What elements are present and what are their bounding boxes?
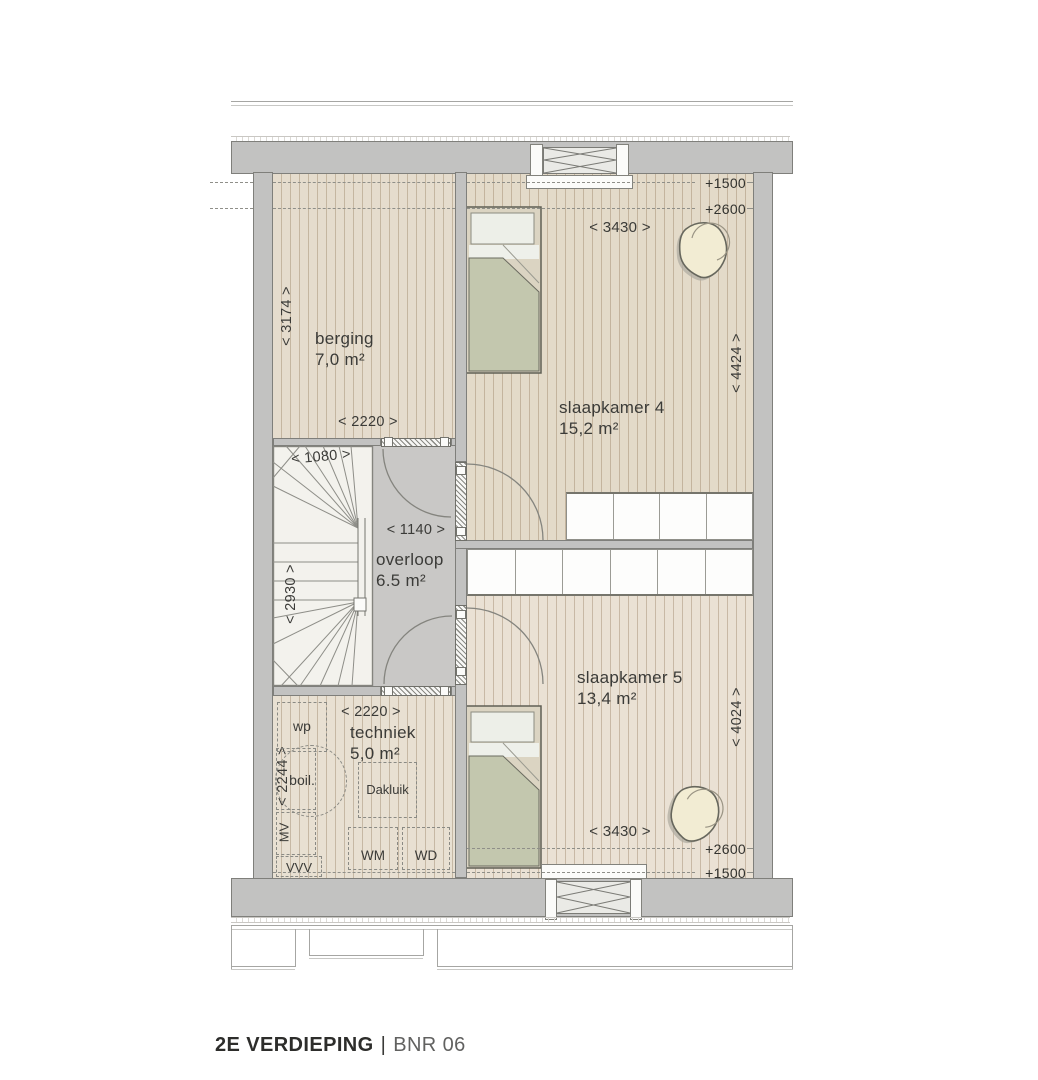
dim-2930: < 2930 > bbox=[283, 554, 299, 634]
stair-handrail bbox=[354, 518, 366, 616]
wall-berging-stairs-b bbox=[451, 438, 456, 446]
wall-top bbox=[231, 141, 793, 174]
wall-left bbox=[253, 172, 273, 917]
room-name: slaapkamer 4 bbox=[559, 397, 665, 418]
height-line-top-2600 bbox=[273, 208, 455, 209]
level-label-top-1500: +1500 bbox=[696, 175, 746, 191]
wardrobe-cell bbox=[611, 550, 659, 594]
window-top-post-right bbox=[616, 144, 629, 176]
dim-3430-slaapkamer5: < 3430 > bbox=[580, 823, 660, 840]
wall-corridor-middle bbox=[455, 541, 467, 606]
dim-3174: < 3174 > bbox=[279, 276, 295, 356]
room-area: 15,2 m² bbox=[559, 418, 665, 439]
door-jamb bbox=[456, 466, 466, 475]
height-line-top-2600 bbox=[747, 208, 753, 209]
height-line-top-1500 bbox=[210, 182, 253, 183]
room-area: 13,4 m² bbox=[577, 688, 683, 709]
wardrobe-cell bbox=[658, 550, 706, 594]
room-name: overloop bbox=[376, 549, 444, 570]
room-area: 6.5 m² bbox=[376, 570, 444, 591]
window-top-glass bbox=[543, 147, 617, 174]
height-line-bottom-1500 bbox=[467, 872, 695, 873]
door-jamb bbox=[440, 437, 449, 447]
lower-outline-notch2 bbox=[309, 958, 423, 959]
wall-right bbox=[753, 172, 773, 917]
height-line-bottom-2600 bbox=[467, 848, 695, 849]
room-label-berging: berging 7,0 m² bbox=[315, 328, 374, 370]
door-jamb bbox=[456, 610, 466, 619]
wardrobe-cell bbox=[614, 494, 661, 539]
lower-outline-vert bbox=[437, 929, 438, 967]
wall-berging-stairs-a bbox=[273, 438, 381, 446]
lower-outline-bottom-left bbox=[231, 966, 295, 967]
roof-edge-top-outer bbox=[231, 101, 793, 102]
lower-outline-vert bbox=[231, 925, 232, 969]
room-label-slaapkamer5: slaapkamer 5 13,4 m² bbox=[577, 667, 683, 709]
fixture-label-wp: wp bbox=[277, 718, 327, 734]
room-area: 7,0 m² bbox=[315, 349, 374, 370]
door-jamb bbox=[456, 527, 466, 536]
lower-outline-top2 bbox=[231, 929, 793, 930]
wall-corridor-upper bbox=[455, 172, 467, 462]
wall-stairs-techniek-b bbox=[451, 686, 456, 696]
wardrobe-cell bbox=[516, 550, 564, 594]
dim-2220-techniek: < 2220 > bbox=[331, 704, 411, 720]
roof-hatch-bottom bbox=[231, 917, 790, 923]
floor-plan-page: +1500 +2600 +2600 +1500 < 3174 > < 2220 … bbox=[0, 0, 1038, 1080]
fixture-label-wm: WM bbox=[348, 848, 398, 863]
wardrobe-cell bbox=[563, 550, 611, 594]
dim-4024: < 4024 > bbox=[729, 677, 745, 757]
level-label-top-2600: +2600 bbox=[696, 201, 746, 217]
dim-4424: < 4424 > bbox=[729, 323, 745, 403]
plan-title: 2E VERDIEPING|BNR 06 bbox=[215, 1034, 466, 1057]
floor-berging bbox=[273, 173, 455, 438]
window-bottom-post-right bbox=[630, 879, 642, 920]
room-label-overloop: overloop 6.5 m² bbox=[376, 549, 444, 591]
door-jamb bbox=[384, 437, 393, 447]
plan-title-separator: | bbox=[374, 1034, 394, 1056]
height-line-top-1500 bbox=[467, 182, 695, 183]
lower-outline-notch bbox=[309, 955, 423, 956]
room-area: 5,0 m² bbox=[350, 743, 416, 764]
plan-title-floor: 2E VERDIEPING bbox=[215, 1034, 374, 1056]
door-jamb bbox=[440, 686, 449, 696]
wardrobe-cell bbox=[468, 550, 516, 594]
lower-outline-bottom-right2 bbox=[437, 969, 793, 970]
plan-title-number: BNR 06 bbox=[393, 1034, 465, 1056]
lower-outline-vert bbox=[792, 925, 793, 969]
height-line-top-2600 bbox=[210, 208, 253, 209]
lower-outline-vert bbox=[309, 929, 310, 956]
room-name: berging bbox=[315, 328, 374, 349]
height-line-top-1500 bbox=[273, 182, 455, 183]
lower-outline-vert bbox=[295, 929, 296, 967]
wall-bedroom-divider bbox=[455, 540, 753, 549]
wardrobe-slaapkamer5 bbox=[467, 549, 753, 596]
dim-3430-slaapkamer4: < 3430 > bbox=[580, 219, 660, 236]
wardrobe-cell bbox=[567, 494, 614, 539]
wardrobe-cell bbox=[660, 494, 707, 539]
level-label-bottom-1500: +1500 bbox=[696, 865, 746, 881]
wall-corridor-lower bbox=[455, 684, 467, 878]
wardrobe-slaapkamer4 bbox=[566, 492, 753, 540]
room-name: slaapkamer 5 bbox=[577, 667, 683, 688]
room-name: techniek bbox=[350, 722, 416, 743]
dim-2220-berging: < 2220 > bbox=[328, 414, 408, 430]
fixture-label-dakluik: Dakluik bbox=[358, 782, 417, 797]
window-top-post-left bbox=[530, 144, 543, 176]
wardrobe-cell bbox=[707, 494, 753, 539]
level-label-bottom-2600: +2600 bbox=[696, 841, 746, 857]
door-jamb bbox=[456, 667, 466, 676]
height-line-bottom-1500 bbox=[747, 872, 753, 873]
dim-1080: < 1080 > bbox=[280, 446, 361, 469]
wall-bottom bbox=[231, 878, 793, 917]
door-jamb bbox=[384, 686, 393, 696]
lower-outline-bottom-right bbox=[437, 966, 793, 967]
height-line-top-2600 bbox=[467, 208, 695, 209]
lower-outline-top bbox=[231, 925, 793, 926]
room-label-techniek: techniek 5,0 m² bbox=[350, 722, 416, 764]
window-bottom-glass bbox=[556, 881, 631, 914]
wall-stairs-techniek-a bbox=[273, 686, 381, 696]
roof-edge-top-inner bbox=[231, 105, 793, 106]
fixture-label-vvv: VVV bbox=[276, 860, 322, 875]
room-label-slaapkamer4: slaapkamer 4 15,2 m² bbox=[559, 397, 665, 439]
fixture-label-boiler: boil. bbox=[280, 772, 324, 788]
height-line-bottom-2600 bbox=[747, 848, 753, 849]
lower-outline-bottom-left2 bbox=[231, 969, 295, 970]
wardrobe-cell bbox=[706, 550, 753, 594]
lower-outline-vert bbox=[423, 929, 424, 956]
dim-1140: < 1140 > bbox=[376, 522, 456, 538]
height-line-top-1500 bbox=[747, 182, 753, 183]
fixture-label-wd: WD bbox=[402, 848, 450, 863]
fixture-label-mv: MV bbox=[277, 803, 292, 863]
